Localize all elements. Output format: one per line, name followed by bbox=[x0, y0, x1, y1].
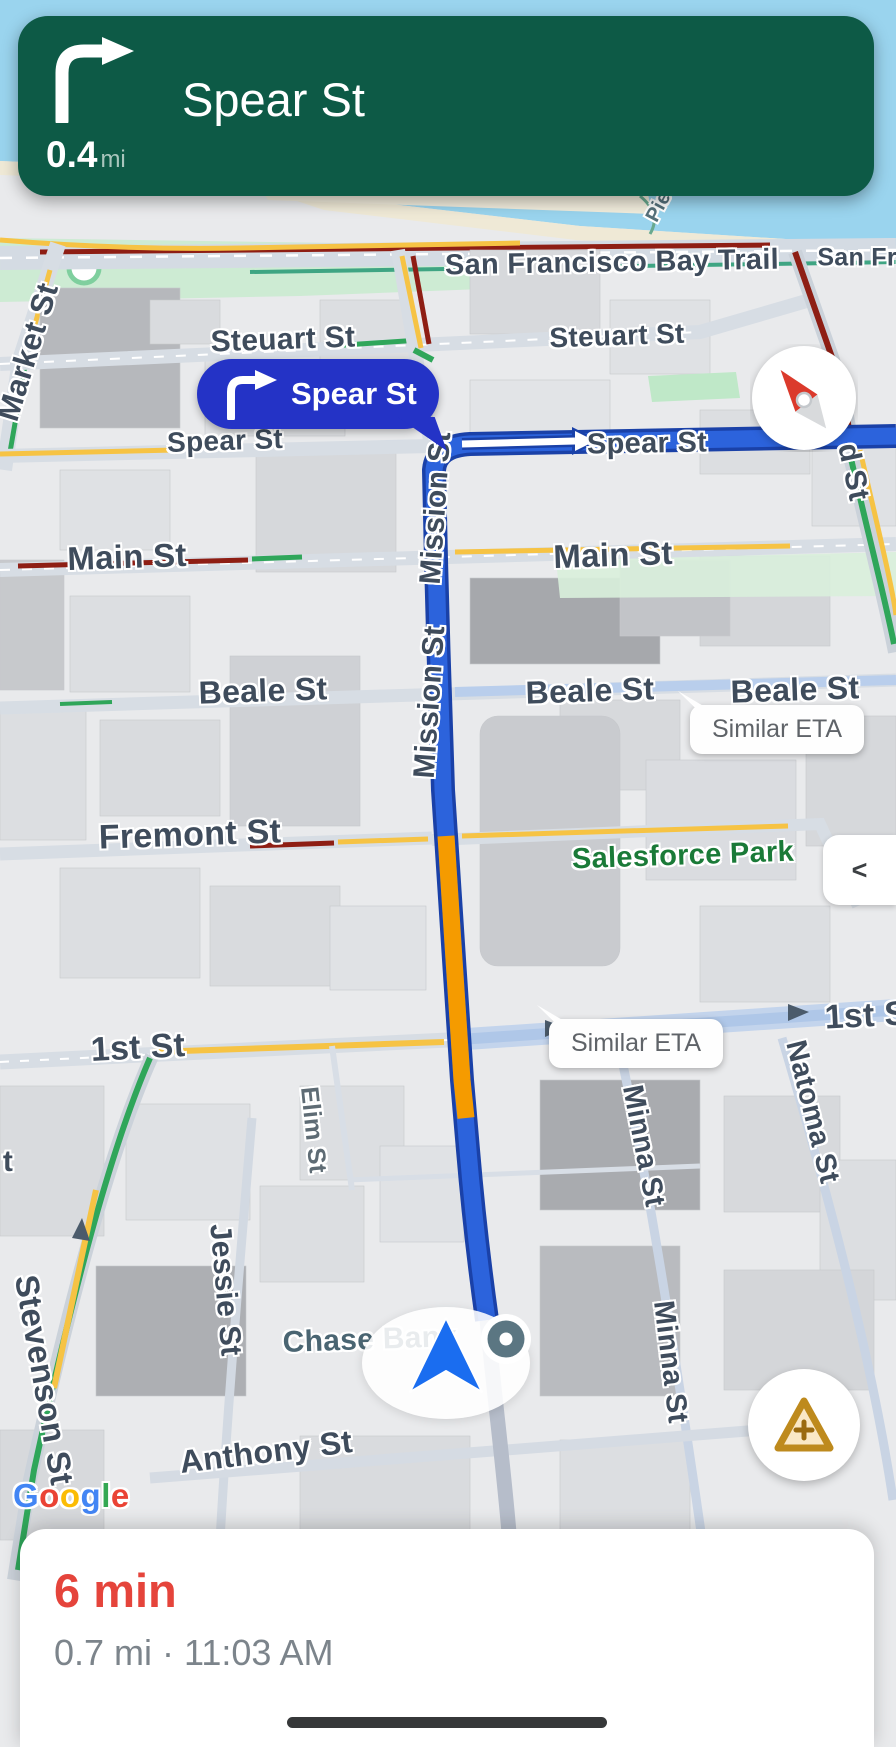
chevron-left-icon: < bbox=[852, 855, 868, 886]
home-indicator[interactable] bbox=[287, 1717, 607, 1728]
alternate-route-tooltip-1[interactable]: Similar ETA bbox=[690, 705, 864, 754]
turn-right-icon bbox=[46, 37, 138, 123]
eta-details: 0.7 mi · 11:03 AM bbox=[54, 1632, 874, 1674]
traffic-yellow bbox=[338, 839, 428, 842]
callout-label: Spear St bbox=[291, 376, 417, 412]
alternate-route-tooltip-2[interactable]: Similar ETA bbox=[549, 1019, 723, 1068]
traffic-dark-red bbox=[250, 843, 334, 846]
alt-route-beale bbox=[455, 680, 896, 692]
banner-icon-column: 0.4mi bbox=[18, 37, 168, 176]
route-arrow bbox=[462, 441, 575, 444]
collapse-panel-button[interactable]: < bbox=[823, 835, 896, 905]
report-incident-button[interactable] bbox=[748, 1369, 860, 1481]
banner-instruction: Spear St bbox=[182, 72, 365, 127]
route-traffic-orange bbox=[446, 836, 466, 1118]
tooltip-text: Similar ETA bbox=[571, 1029, 701, 1057]
road-mission-lower bbox=[487, 1320, 510, 1545]
green-patch bbox=[648, 372, 740, 402]
warning-triangle-icon bbox=[771, 1394, 837, 1456]
traffic-green bbox=[60, 702, 112, 704]
eta-duration: 6 min bbox=[54, 1563, 874, 1618]
tooltip-text: Similar ETA bbox=[712, 715, 842, 743]
next-turn-callout: Spear St bbox=[197, 359, 439, 429]
eta-bottom-sheet[interactable]: 6 min 0.7 mi · 11:03 AM bbox=[20, 1529, 874, 1747]
compass-button[interactable] bbox=[750, 344, 858, 452]
map-canvas[interactable] bbox=[0, 0, 896, 1747]
navigation-screen: San Francisco Bay TrailSan FranPieSteuar… bbox=[0, 0, 896, 1747]
traffic-green bbox=[252, 557, 302, 559]
turn-right-icon bbox=[219, 368, 281, 420]
navigation-banner[interactable]: 0.4mi Spear St bbox=[18, 16, 874, 196]
distance-unit: mi bbox=[100, 146, 125, 173]
distance-value: 0.4 bbox=[46, 134, 97, 175]
banner-distance: 0.4mi bbox=[46, 134, 168, 176]
google-watermark: Google bbox=[13, 1477, 130, 1515]
